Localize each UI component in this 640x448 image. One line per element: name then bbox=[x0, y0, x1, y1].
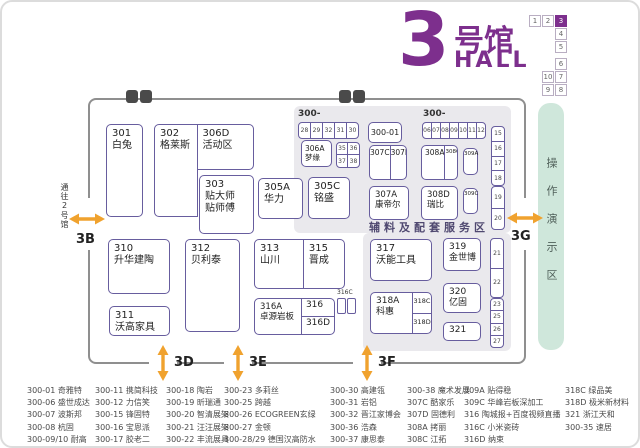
booth-301: 301白兔 bbox=[106, 124, 143, 217]
booth-308D: 308D瑞比 bbox=[421, 186, 458, 220]
legend-entry: 300-35 速居 bbox=[565, 422, 629, 434]
booth-320: 320亿固 bbox=[443, 283, 481, 313]
booth-308C: 308C bbox=[444, 146, 458, 179]
booth-308A: 308A bbox=[422, 146, 444, 179]
booth-name: 白兔 bbox=[112, 140, 140, 152]
booth-name: 活动区 bbox=[203, 140, 251, 152]
booth-id: 301 bbox=[112, 128, 140, 140]
entrance-label-3f: 3F bbox=[378, 355, 396, 370]
booth-318D: 318D bbox=[413, 313, 431, 334]
strip-cell: 32 bbox=[322, 123, 334, 138]
strip-cell: 12 bbox=[476, 123, 485, 138]
booth-name: 华力 bbox=[264, 194, 300, 206]
booth-id: 316D bbox=[306, 318, 334, 328]
demo-area-label: 操作演示区 bbox=[543, 157, 559, 297]
strip-cell: 19 bbox=[492, 187, 504, 208]
strip-21-22: 2122 bbox=[490, 238, 504, 298]
arrow-vertical-icon bbox=[359, 344, 375, 382]
booth-name: 贴大师 bbox=[205, 191, 251, 203]
booth-id: 306A bbox=[305, 144, 329, 153]
legend-entry: 300-28/29 德国汉高防水 bbox=[224, 434, 316, 446]
minimap-cell-2: 2 bbox=[542, 15, 554, 27]
minimap-cell-5: 5 bbox=[555, 41, 567, 53]
booth-block-313-315: 313山川 315晋成 bbox=[254, 239, 345, 289]
booth-block-308: 308A 308C bbox=[421, 145, 458, 180]
booth-300-01: 300-01 bbox=[368, 122, 402, 143]
legend-entry: 300-07 波斯邦 bbox=[27, 409, 90, 421]
strip-cell: 15 bbox=[492, 127, 504, 141]
booth-id: 320 bbox=[449, 287, 478, 298]
booth-id: 300-01 bbox=[371, 128, 399, 138]
legend-entry: 300-38 魔术发展 bbox=[407, 385, 470, 397]
booth-id: 316 bbox=[306, 300, 334, 310]
strip-35-38: 35363738 bbox=[336, 142, 360, 168]
strip-cell: 26 bbox=[491, 323, 503, 335]
booth-316C-label: 316C bbox=[337, 289, 353, 296]
booth-id: 316A bbox=[260, 302, 301, 312]
booth-303: 303贴大师贴师傅 bbox=[199, 175, 254, 234]
legend-entry: 307D 固德利 bbox=[407, 409, 470, 421]
minimap-cell-10: 10 bbox=[542, 71, 554, 83]
booth-id: 312 bbox=[191, 243, 237, 255]
strip-cell: 09 bbox=[449, 123, 458, 138]
booth-309C: 309C bbox=[463, 188, 478, 214]
legend-entry: 316C 小米瓷砖 bbox=[464, 422, 561, 434]
legend-entry: 318D 极米新材料 bbox=[565, 397, 629, 409]
legend-column-4: 300-23 多莉丝300-25 跨越300-26 ECOGREEN玄绿300-… bbox=[224, 385, 316, 446]
strip-cell: 30 bbox=[346, 123, 358, 138]
legend-entry: 300-19 昕瑞通 bbox=[166, 397, 229, 409]
booth-id: 311 bbox=[115, 310, 167, 322]
hall-number: 3 bbox=[398, 4, 450, 76]
minimap-cell-6: 6 bbox=[555, 58, 567, 70]
booth-name: 晋成 bbox=[309, 255, 344, 267]
legend-column-8: 318C 绿品美318D 极米新材料321 浙江天和300-35 速居 bbox=[565, 385, 629, 434]
legend-entry: 321 浙江天和 bbox=[565, 409, 629, 421]
booth-311: 311沃高家具 bbox=[109, 306, 170, 336]
legend-entry: 300-15 锋固特 bbox=[95, 409, 158, 421]
booth-name: 升华建陶 bbox=[114, 255, 167, 267]
strip-cell: 23 bbox=[491, 299, 503, 310]
strip-cell: 28 bbox=[299, 123, 310, 138]
hall-name-en: HALL bbox=[454, 48, 529, 73]
strip-cell: 22 bbox=[491, 268, 503, 298]
legend-entry: 300-25 跨越 bbox=[224, 397, 316, 409]
strip-cell: 29 bbox=[310, 123, 322, 138]
strip-300b: 06070809101112 bbox=[422, 122, 486, 139]
minimap-cell-3: 3 bbox=[555, 15, 567, 27]
booth-id: 313 bbox=[260, 243, 303, 255]
entrance-label-3g: 3G bbox=[511, 229, 531, 244]
legend-entry: 300-20 智清展架 bbox=[166, 409, 229, 421]
booth-id: 302 bbox=[160, 128, 195, 140]
booth-318A: 318A科惠 bbox=[371, 293, 412, 333]
hall3-floorplan: 3 号馆 HALL 12345610798 操作演示区 通往2号馆 3B 3G … bbox=[0, 0, 640, 448]
booth-316: 316 bbox=[302, 299, 334, 316]
legend-entry: 307C 酷家乐 bbox=[407, 397, 470, 409]
booth-name: 沃高家具 bbox=[115, 322, 167, 334]
strip-cell: 08 bbox=[440, 123, 449, 138]
booth-315: 315晋成 bbox=[303, 240, 344, 288]
legend-entry: 300-06 盛世成达 bbox=[27, 397, 90, 409]
strip-cell: 17 bbox=[492, 156, 504, 171]
legend-entry: 300-37 康思泰 bbox=[330, 434, 401, 446]
minimap-cell-7: 7 bbox=[555, 71, 567, 83]
booth-306A: 306A梦缘 bbox=[301, 140, 332, 167]
booth-305C: 305C铭盛 bbox=[308, 177, 350, 219]
arrow-horizontal-icon bbox=[506, 210, 544, 226]
booth-id: 303 bbox=[205, 179, 251, 191]
strip-23-27: 23252627 bbox=[490, 298, 504, 348]
legend-entry: 308C 江拓 bbox=[407, 434, 470, 446]
legend-column-1: 300-01 奇雅特300-06 盛世成达300-07 波斯邦300-08 杭固… bbox=[27, 385, 90, 446]
booth-316D: 316D bbox=[302, 316, 334, 334]
legend-entry: 300-31 岩铝 bbox=[330, 397, 401, 409]
legend-entry: 300-12 力信笑 bbox=[95, 397, 158, 409]
small-booth-cell bbox=[337, 298, 346, 314]
legend-entry: 300-18 陶岩 bbox=[166, 385, 229, 397]
booth-310: 310升华建陶 bbox=[108, 239, 170, 294]
strip-cell: 38 bbox=[348, 155, 359, 167]
legend-column-3: 300-18 陶岩300-19 昕瑞通300-20 智清展架300-21 汪汪展… bbox=[166, 385, 229, 446]
booth-309A: 309A bbox=[463, 148, 478, 175]
strip-cell: 25 bbox=[491, 310, 503, 322]
minimap-cell-8: 8 bbox=[555, 84, 567, 96]
legend-column-5: 300-30 高建瓴300-31 岩铝300-32 晋江家博会300-36 浩森… bbox=[330, 385, 401, 446]
minimap-cell-1: 1 bbox=[529, 15, 541, 27]
booth-id: 309A bbox=[464, 151, 477, 158]
booth-307A: 307A康帝尔 bbox=[369, 186, 409, 220]
legend-column-2: 300-11 携简科技300-12 力信笑300-15 锋固特300-16 宝恩… bbox=[95, 385, 158, 446]
legend-entry: 300-08 杭固 bbox=[27, 422, 90, 434]
strip-300a-label: 300- bbox=[298, 109, 321, 119]
legend-entry: 300-27 金顿 bbox=[224, 422, 316, 434]
entrance-label-3b: 3B bbox=[76, 232, 95, 247]
booth-name: 科惠 bbox=[376, 307, 412, 318]
minimap-cell-4: 4 bbox=[555, 28, 567, 40]
strip-cell: 07 bbox=[431, 123, 440, 138]
legend-entry: 300-01 奇雅特 bbox=[27, 385, 90, 397]
entrance-label-3d: 3D bbox=[174, 355, 194, 370]
strip-cell: 20 bbox=[492, 208, 504, 230]
booth-id: 308C bbox=[445, 149, 458, 155]
strip-19-20: 1920 bbox=[491, 186, 505, 230]
booth-316-column: 316 316D bbox=[301, 299, 334, 334]
legend-entry: 300-36 浩森 bbox=[330, 422, 401, 434]
booth-id: 306D bbox=[203, 128, 251, 140]
booth-id: 317 bbox=[376, 243, 429, 255]
booth-307C: 307C bbox=[370, 146, 390, 179]
booth-id: 309C bbox=[464, 191, 477, 198]
strip-cell: 10 bbox=[458, 123, 467, 138]
entrance-label-3e: 3E bbox=[249, 355, 267, 370]
legend-entry: 308A 拷丽 bbox=[407, 422, 470, 434]
strip-cell: 18 bbox=[492, 170, 504, 185]
booth-312: 312贝利泰 bbox=[185, 239, 240, 332]
legend-entry: 316D 纳束 bbox=[464, 434, 561, 446]
booth-id: 305C bbox=[314, 181, 347, 193]
booth-305A: 305A华力 bbox=[258, 178, 303, 219]
booth-id: 310 bbox=[114, 243, 167, 255]
booth-id: 307C bbox=[370, 148, 390, 157]
strip-300a: 2829323130 bbox=[298, 122, 359, 139]
booth-name: 沃能工具 bbox=[376, 255, 429, 267]
strip-cell: 21 bbox=[491, 239, 503, 268]
booth-302: 302格莱斯 bbox=[154, 124, 198, 217]
legend-entry: 300-26 ECOGREEN玄绿 bbox=[224, 409, 316, 421]
booth-id: 308D bbox=[427, 190, 455, 200]
booth-318C: 318C bbox=[413, 293, 431, 313]
small-booth-cell bbox=[347, 298, 356, 314]
booth-id: 307D bbox=[391, 148, 407, 157]
strip-cell: 27 bbox=[491, 335, 503, 347]
booth-318-column: 318C 318D bbox=[412, 293, 431, 333]
booth-block-307: 307C 307D bbox=[369, 145, 407, 180]
strip-cell: 36 bbox=[348, 143, 359, 155]
booth-306D: 306D活动区 bbox=[197, 124, 254, 170]
booth-317: 317沃能工具 bbox=[370, 239, 432, 281]
booth-313: 313山川 bbox=[255, 240, 303, 288]
booth-name: 康帝尔 bbox=[375, 200, 406, 210]
booth-id: 307A bbox=[375, 190, 406, 200]
booth-319: 319金世博 bbox=[443, 238, 481, 271]
booth-block-318: 318A科惠 318C 318D bbox=[370, 292, 432, 334]
legend-entry: 300-21 汪汪展架 bbox=[166, 422, 229, 434]
booth-321: 321 bbox=[443, 322, 481, 341]
booth-id: 319 bbox=[449, 242, 478, 253]
booth-name: 瑞比 bbox=[427, 200, 455, 210]
strip-15-18: 15161718 bbox=[491, 126, 505, 186]
strip-cell: 11 bbox=[467, 123, 476, 138]
legend-entry: 309A 贴得稳 bbox=[464, 385, 561, 397]
hall-minimap: 12345610798 bbox=[529, 15, 571, 99]
booth-name: 铭盛 bbox=[314, 193, 347, 205]
door-icon bbox=[126, 90, 152, 103]
booth-name: 贴师傅 bbox=[205, 203, 251, 215]
legend-column-6: 300-38 魔术发展307C 酷家乐307D 固德利308A 拷丽308C 江… bbox=[407, 385, 470, 446]
legend-entry: 300-11 携简科技 bbox=[95, 385, 158, 397]
booth-block-316: 316A卓源岩板 316 316D bbox=[254, 298, 335, 335]
booth-id: 315 bbox=[309, 243, 344, 255]
booth-name: 贝利泰 bbox=[191, 255, 237, 267]
demo-area: 操作演示区 bbox=[538, 103, 564, 350]
booth-name: 亿固 bbox=[449, 298, 478, 309]
booth-id: 318A bbox=[376, 296, 412, 307]
strip-cell: 35 bbox=[337, 143, 348, 155]
door-icon bbox=[339, 90, 365, 103]
arrow-horizontal-icon bbox=[68, 211, 106, 227]
arrow-vertical-icon bbox=[230, 344, 246, 382]
strip-cell: 16 bbox=[492, 141, 504, 156]
legend-entry: 316 陶城报+百度视频直播 bbox=[464, 409, 561, 421]
arrow-vertical-icon bbox=[155, 344, 171, 382]
booth-id: 305A bbox=[264, 182, 300, 194]
strip-300b-label: 300- bbox=[423, 109, 446, 119]
booth-name: 梦缘 bbox=[305, 153, 329, 162]
minimap-cell-9: 9 bbox=[542, 84, 554, 96]
legend-entry: 300-09/10 耐高 bbox=[27, 434, 90, 446]
strip-cell: 37 bbox=[337, 155, 348, 167]
booth-id: 308A bbox=[425, 148, 444, 157]
booth-id: 318D bbox=[413, 318, 431, 326]
booth-id: 321 bbox=[449, 325, 478, 336]
legend-entry: 309C 华峰岩板深加工 bbox=[464, 397, 561, 409]
booth-307D: 307D bbox=[390, 146, 407, 179]
legend-entry: 300-32 晋江家博会 bbox=[330, 409, 401, 421]
legend-entry: 300-16 宝恩派 bbox=[95, 422, 158, 434]
booth-name: 格莱斯 bbox=[160, 140, 195, 152]
legend-entry: 300-17 胶老二 bbox=[95, 434, 158, 446]
strip-cell: 06 bbox=[423, 123, 431, 138]
booth-316A: 316A卓源岩板 bbox=[255, 299, 301, 334]
strip-cell: 31 bbox=[334, 123, 346, 138]
legend-column-7: 309A 贴得稳309C 华峰岩板深加工316 陶城报+百度视频直播316C 小… bbox=[464, 385, 561, 446]
booth-name: 金世博 bbox=[449, 253, 478, 264]
legend-entry: 300-30 高建瓴 bbox=[330, 385, 401, 397]
booth-id: 318C bbox=[413, 297, 431, 305]
booth-name: 卓源岩板 bbox=[260, 312, 301, 322]
service-area-label: 辅料及配套服务区 bbox=[350, 219, 508, 235]
legend-entry: 300-22 丰流展具 bbox=[166, 434, 229, 446]
booth-name: 山川 bbox=[260, 255, 303, 267]
legend-entry: 300-23 多莉丝 bbox=[224, 385, 316, 397]
legend-entry: 318C 绿品美 bbox=[565, 385, 629, 397]
